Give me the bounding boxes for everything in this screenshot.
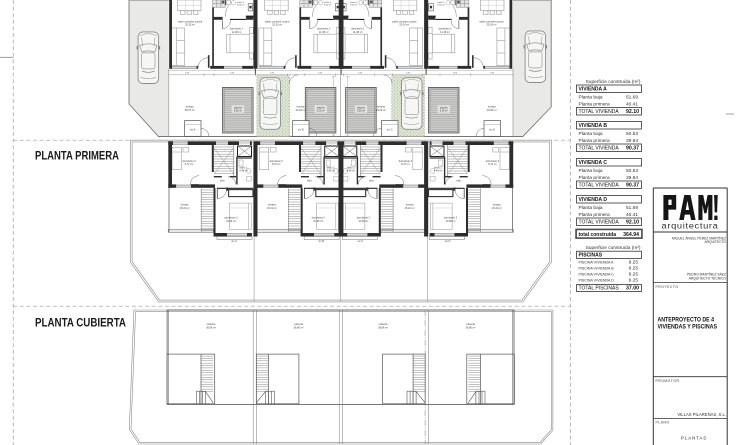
svg-text:viv D: viv D: [445, 239, 451, 243]
svg-text:15.22 m²: 15.22 m²: [492, 207, 502, 210]
svg-text:11.38 m²: 11.38 m²: [440, 31, 450, 34]
svg-text:92.10: 92.10: [626, 220, 639, 226]
svg-text:distr.: distr.: [307, 180, 313, 183]
svg-text:Planta baja: Planta baja: [579, 131, 603, 137]
svg-text:TOTAL VIVIENDA: TOTAL VIVIENDA: [579, 183, 620, 189]
svg-text:10.66 m²: 10.66 m²: [226, 220, 236, 223]
svg-text:VIVIENDA D: VIVIENDA D: [579, 197, 608, 203]
svg-text:VIVIENDAS Y PISCINAS: VIVIENDAS Y PISCINAS: [658, 324, 718, 331]
svg-text:39.84: 39.84: [626, 138, 638, 144]
svg-text:distr.: distr.: [369, 180, 375, 183]
svg-text:24.40 m²: 24.40 m²: [296, 109, 306, 112]
svg-text:ANTEPROYECTO DE 4: ANTEPROYECTO DE 4: [658, 316, 715, 323]
svg-text:9.25: 9.25: [629, 265, 639, 271]
svg-text:niv A: niv A: [190, 128, 196, 132]
svg-text:Planta baja: Planta baja: [579, 168, 603, 174]
svg-text:total construida: total construida: [579, 232, 617, 238]
svg-text:36.86 m²: 36.86 m²: [466, 326, 476, 329]
svg-text:10.66 m²: 10.66 m²: [313, 220, 323, 223]
svg-text:PLANTA PRIMERA: PLANTA PRIMERA: [35, 151, 119, 163]
svg-text:Planta primera: Planta primera: [579, 212, 611, 218]
svg-text:364.94: 364.94: [623, 232, 639, 238]
svg-text:36.86 m²: 36.86 m²: [294, 326, 304, 329]
svg-text:ARQUITECTO: ARQUITECTO: [704, 240, 726, 244]
svg-text:25.30 m²: 25.30 m²: [185, 24, 195, 27]
svg-text:37.00: 37.00: [626, 286, 639, 292]
svg-text:25.30 m²: 25.30 m²: [272, 24, 282, 27]
svg-text:TOTAL VIVIENDA: TOTAL VIVIENDA: [579, 109, 620, 115]
svg-text:PLANO: PLANO: [656, 421, 670, 425]
svg-text:50.53: 50.53: [626, 168, 638, 174]
svg-text:niv D: niv D: [489, 128, 495, 132]
svg-text:distr.: distr.: [456, 180, 462, 183]
svg-text:Planta primera: Planta primera: [579, 138, 611, 144]
svg-text:viv B: viv B: [318, 239, 324, 243]
svg-text:8.72 m²: 8.72 m²: [401, 163, 410, 166]
svg-text:36.86 m²: 36.86 m²: [206, 326, 216, 329]
svg-text:9.25: 9.25: [629, 277, 639, 283]
svg-text:PISCINA VIVIENDA A: PISCINA VIVIENDA A: [579, 260, 615, 264]
svg-text:PROMOTOR: PROMOTOR: [656, 379, 680, 383]
svg-text:9.25 m²: 9.25 m²: [357, 110, 365, 113]
svg-text:Planta primera: Planta primera: [579, 102, 611, 108]
svg-text:niv B: niv B: [298, 128, 304, 132]
svg-text:11.38 m²: 11.38 m²: [353, 31, 363, 34]
svg-text:baño 1: baño 1: [350, 1, 357, 4]
svg-text:11.38 m²: 11.38 m²: [319, 31, 329, 34]
svg-text:15.22 m²: 15.22 m²: [405, 207, 415, 210]
svg-text:38.07 m²: 38.07 m²: [185, 109, 195, 112]
svg-text:PISCINA VIVIENDA D: PISCINA VIVIENDA D: [579, 278, 615, 282]
svg-text:10.66 m²: 10.66 m²: [446, 220, 456, 223]
svg-text:3.50 m²: 3.50 m²: [437, 4, 445, 7]
svg-text:51.69: 51.69: [626, 95, 638, 101]
svg-text:Superficie construida (m²): Superficie construida (m²): [586, 79, 641, 85]
svg-text:PLANTAS: PLANTAS: [681, 436, 707, 441]
svg-text:3.50 m²: 3.50 m²: [324, 4, 332, 7]
svg-text:92.10: 92.10: [626, 109, 639, 115]
svg-text:PISCINA VIVIENDA C: PISCINA VIVIENDA C: [579, 272, 615, 276]
svg-text:PISCINAS: PISCINAS: [579, 253, 603, 259]
svg-text:8.72 m²: 8.72 m²: [272, 163, 281, 166]
svg-text:Planta primera: Planta primera: [579, 175, 611, 181]
svg-text:50.53: 50.53: [626, 131, 638, 137]
svg-text:4.48 m²: 4.48 m²: [326, 170, 335, 173]
svg-text:TOTAL VIVIENDA: TOTAL VIVIENDA: [579, 220, 620, 226]
svg-text:3.50 m²: 3.50 m²: [237, 4, 245, 7]
svg-text:3.50 m²: 3.50 m²: [350, 4, 358, 7]
svg-text:Planta baja: Planta baja: [579, 205, 603, 211]
svg-text:baño 1: baño 1: [324, 1, 331, 4]
svg-text:Planta baja: Planta baja: [579, 95, 603, 101]
svg-text:90.37: 90.37: [626, 146, 639, 152]
svg-text:TOTAL VIVIENDA: TOTAL VIVIENDA: [579, 146, 620, 152]
svg-text:25.30 m²: 25.30 m²: [487, 24, 497, 27]
svg-text:39.84: 39.84: [626, 175, 638, 181]
svg-text:40.41: 40.41: [626, 212, 638, 218]
svg-text:PROYECTO: PROYECTO: [656, 285, 679, 289]
svg-text:PISCINA VIVIENDA B: PISCINA VIVIENDA B: [579, 266, 615, 270]
svg-text:4.48 m²: 4.48 m²: [434, 170, 443, 173]
svg-text:9.25 m²: 9.25 m²: [440, 110, 448, 113]
svg-text:4.48 m²: 4.48 m²: [347, 170, 356, 173]
svg-text:TOTAL PISCINAS: TOTAL PISCINAS: [579, 286, 620, 292]
svg-text:24.40 m²: 24.40 m²: [376, 109, 386, 112]
svg-text:baño 1: baño 1: [237, 1, 244, 4]
svg-text:51.69: 51.69: [626, 205, 638, 211]
svg-text:8.72 m²: 8.72 m²: [185, 163, 194, 166]
svg-text:4.48 m²: 4.48 m²: [239, 170, 248, 173]
svg-text:9.25 m²: 9.25 m²: [317, 110, 325, 113]
svg-text:baño 1: baño 1: [438, 1, 445, 4]
svg-text:VIVIENDA B: VIVIENDA B: [579, 123, 608, 129]
svg-text:PLANTA CUBIERTA: PLANTA CUBIERTA: [35, 318, 126, 330]
svg-text:25.30 m²: 25.30 m²: [399, 24, 409, 27]
svg-text:9.25: 9.25: [629, 259, 639, 265]
svg-text:9.25: 9.25: [629, 271, 639, 277]
svg-text:8.72 m²: 8.72 m²: [488, 163, 497, 166]
svg-text:11.38 m²: 11.38 m²: [232, 31, 242, 34]
svg-text:10.66 m²: 10.66 m²: [358, 220, 368, 223]
svg-text:9.25 m²: 9.25 m²: [234, 110, 242, 113]
svg-text:VIVIENDA C: VIVIENDA C: [579, 160, 608, 166]
svg-text:Superficie construida (m²): Superficie construida (m²): [586, 245, 641, 251]
svg-text:VIVIENDA A: VIVIENDA A: [579, 87, 608, 93]
svg-text:36.86 m²: 36.86 m²: [487, 109, 497, 112]
svg-text:viv C: viv C: [357, 239, 363, 243]
svg-text:niv C: niv C: [387, 128, 393, 132]
svg-text:15.22 m²: 15.22 m²: [267, 207, 277, 210]
svg-text:VILLAS PILAREÑAS, S.L.: VILLAS PILAREÑAS, S.L.: [677, 412, 726, 417]
svg-text:40.41: 40.41: [626, 102, 638, 108]
svg-text:36.86 m²: 36.86 m²: [378, 326, 388, 329]
svg-text:distr.: distr.: [220, 180, 226, 183]
svg-text:ARQUITECTO TÉCNICO: ARQUITECTO TÉCNICO: [689, 275, 727, 280]
svg-text:15.22 m²: 15.22 m²: [180, 207, 190, 210]
svg-text:viv A: viv A: [231, 239, 237, 243]
svg-text:arquitectura: arquitectura: [662, 221, 719, 231]
svg-text:90.37: 90.37: [626, 183, 639, 189]
